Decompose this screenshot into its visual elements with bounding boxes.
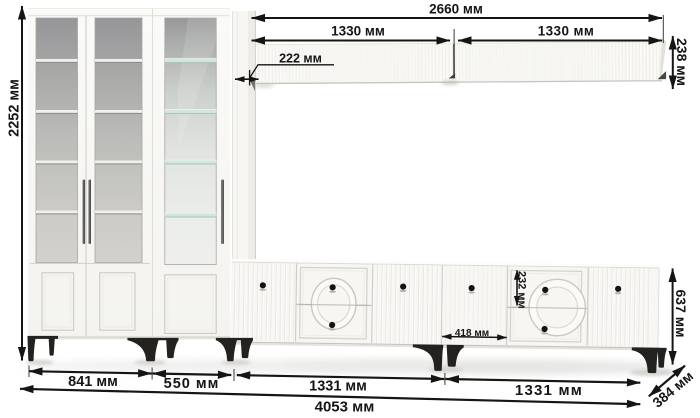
svg-text:232 мм: 232 мм	[515, 271, 527, 309]
svg-text:2660 мм: 2660 мм	[429, 2, 483, 17]
svg-text:637 мм: 637 мм	[673, 290, 689, 338]
svg-text:841 мм: 841 мм	[68, 374, 118, 390]
svg-text:1330 мм: 1330 мм	[538, 24, 595, 39]
svg-text:1331 мм: 1331 мм	[309, 379, 367, 395]
svg-text:550 мм: 550 мм	[164, 376, 220, 392]
svg-text:1331 мм: 1331 мм	[515, 382, 583, 399]
svg-text:4053 мм: 4053 мм	[315, 399, 375, 416]
svg-text:2252 мм: 2252 мм	[7, 79, 23, 137]
svg-text:222 мм: 222 мм	[279, 51, 322, 65]
svg-text:1330 мм: 1330 мм	[331, 24, 385, 39]
svg-text:238 мм: 238 мм	[674, 38, 690, 86]
